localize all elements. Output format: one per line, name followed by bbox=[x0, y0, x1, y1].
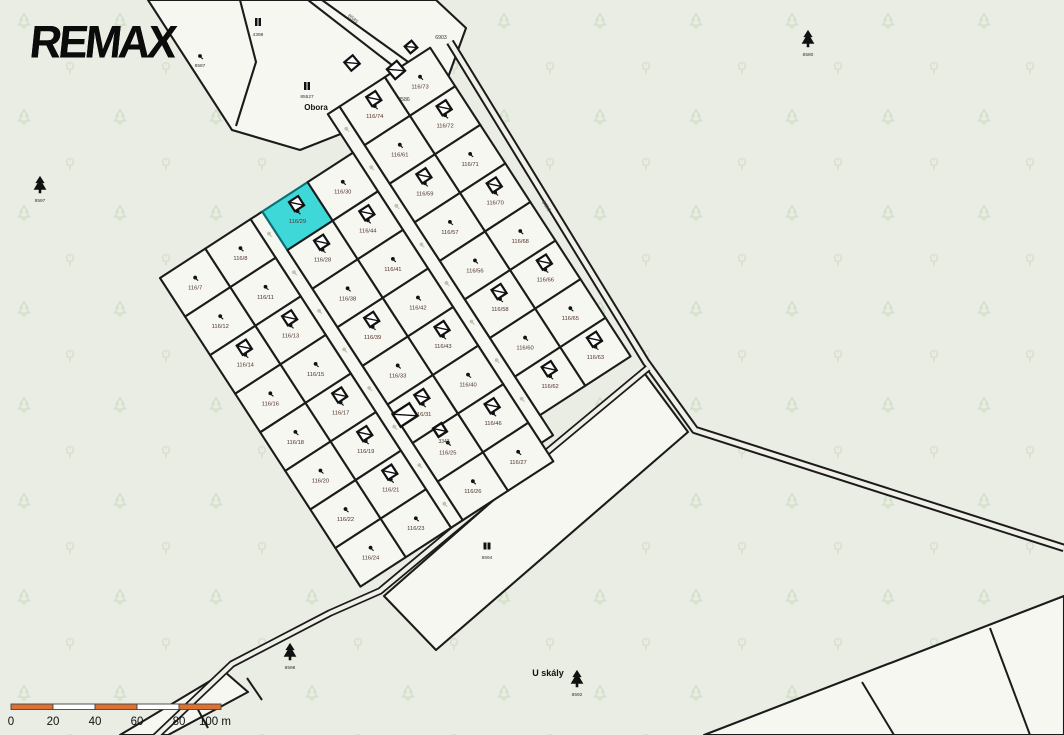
scale-bar-segment bbox=[53, 704, 95, 710]
parcel-label: 116/8 bbox=[233, 256, 247, 262]
marker-number: 8587 bbox=[195, 63, 206, 69]
parcel-label: 116/39 bbox=[364, 335, 381, 341]
parcel-label: 116/20 bbox=[312, 478, 329, 484]
parcel-label: 116/30 bbox=[334, 190, 351, 196]
parcel-label: 116/68 bbox=[512, 239, 529, 245]
parcel-label: 116/29 bbox=[289, 219, 306, 225]
tree-number: 8592 bbox=[572, 692, 583, 698]
parcel-label: 116/74 bbox=[366, 114, 384, 120]
scale-bar-label: 40 bbox=[89, 716, 102, 728]
parcel-label: 116/59 bbox=[416, 191, 433, 197]
place-label-u-skaly: U skály bbox=[532, 668, 564, 678]
parcel-label: 116/40 bbox=[459, 383, 476, 389]
parcel-label: 116/25 bbox=[439, 451, 456, 457]
parcel-label: 116/71 bbox=[461, 162, 478, 168]
parcel-label: 116/66 bbox=[537, 278, 554, 284]
parcel-label: 116/56 bbox=[466, 268, 483, 274]
parcel-label: 116/13 bbox=[282, 333, 299, 339]
parcel-label: 116/19 bbox=[357, 449, 374, 455]
parcel-label: 116/28 bbox=[314, 258, 331, 264]
parcel-label: 116/24 bbox=[362, 556, 380, 562]
parcel-label: 116/43 bbox=[434, 344, 451, 350]
tree-number: 8598 bbox=[285, 665, 296, 671]
building-number: 3343 bbox=[438, 439, 449, 445]
marker-number: 85527 bbox=[300, 94, 314, 100]
parcel-label: 116/14 bbox=[237, 363, 255, 369]
parcel-label: 116/17 bbox=[332, 410, 349, 416]
parcel-label: 116/7 bbox=[188, 286, 202, 292]
parcel-label: 116/58 bbox=[491, 307, 508, 313]
parcel-label: 116/11 bbox=[257, 295, 274, 301]
scale-bar-label: 100 m bbox=[199, 716, 231, 728]
tree-number: 8580 bbox=[803, 52, 814, 58]
scale-bar-segment bbox=[11, 704, 53, 710]
parcel-label: 116/65 bbox=[562, 316, 579, 322]
marker-number: 8594 bbox=[482, 555, 493, 561]
parcel-label: 116/63 bbox=[587, 355, 604, 361]
parcel-label: 116/60 bbox=[516, 346, 533, 352]
parcel-label: 116/16 bbox=[262, 401, 279, 407]
parcel-label: 116/23 bbox=[407, 526, 424, 532]
scale-bar-segment bbox=[179, 704, 221, 710]
place-label-obora: Obora bbox=[304, 103, 328, 112]
parcel-number: 8586 bbox=[398, 97, 410, 103]
scale-bar-label: 0 bbox=[8, 716, 14, 728]
scale-bar-segment bbox=[95, 704, 137, 710]
parcel-label: 116/15 bbox=[307, 372, 324, 378]
tree-number: 8597 bbox=[35, 198, 46, 204]
parcel-label: 116/62 bbox=[541, 384, 558, 390]
cadastral-map-screenshot: 116/7116/12116/14116/16116/18116/20116/2… bbox=[0, 0, 1064, 735]
parcel-label: 116/73 bbox=[411, 85, 428, 91]
parcel-number: 6903 bbox=[435, 35, 447, 41]
parcel-label: 116/70 bbox=[487, 200, 504, 206]
parcel-label: 116/44 bbox=[359, 228, 377, 234]
parcel-label: 116/41 bbox=[384, 267, 401, 273]
parcel-label: 116/42 bbox=[409, 305, 426, 311]
parcel-label: 116/26 bbox=[464, 489, 481, 495]
parcel-label: 116/12 bbox=[212, 324, 229, 330]
parcel-label: 116/57 bbox=[441, 230, 458, 236]
parcel-label: 116/61 bbox=[391, 153, 408, 159]
parcel-label: 116/72 bbox=[436, 123, 453, 129]
scale-bar-label: 80 bbox=[173, 716, 186, 728]
remax-logo: REMAX bbox=[27, 17, 176, 69]
scale-bar-segment bbox=[137, 704, 179, 710]
parcel-label: 116/18 bbox=[287, 440, 304, 446]
parcel-label: 116/33 bbox=[389, 373, 406, 379]
cadastral-map[interactable]: 116/7116/12116/14116/16116/18116/20116/2… bbox=[0, 0, 1064, 735]
marker-number: 4398 bbox=[253, 32, 264, 38]
parcel-label: 116/46 bbox=[484, 421, 501, 427]
parcel-label: 116/27 bbox=[509, 460, 526, 466]
parcel-label: 116/21 bbox=[382, 488, 399, 494]
parcel-label: 116/38 bbox=[339, 296, 356, 302]
scale-bar-label: 20 bbox=[47, 716, 60, 728]
scale-bar-label: 60 bbox=[131, 716, 144, 728]
parcel-label: 116/22 bbox=[337, 517, 354, 523]
